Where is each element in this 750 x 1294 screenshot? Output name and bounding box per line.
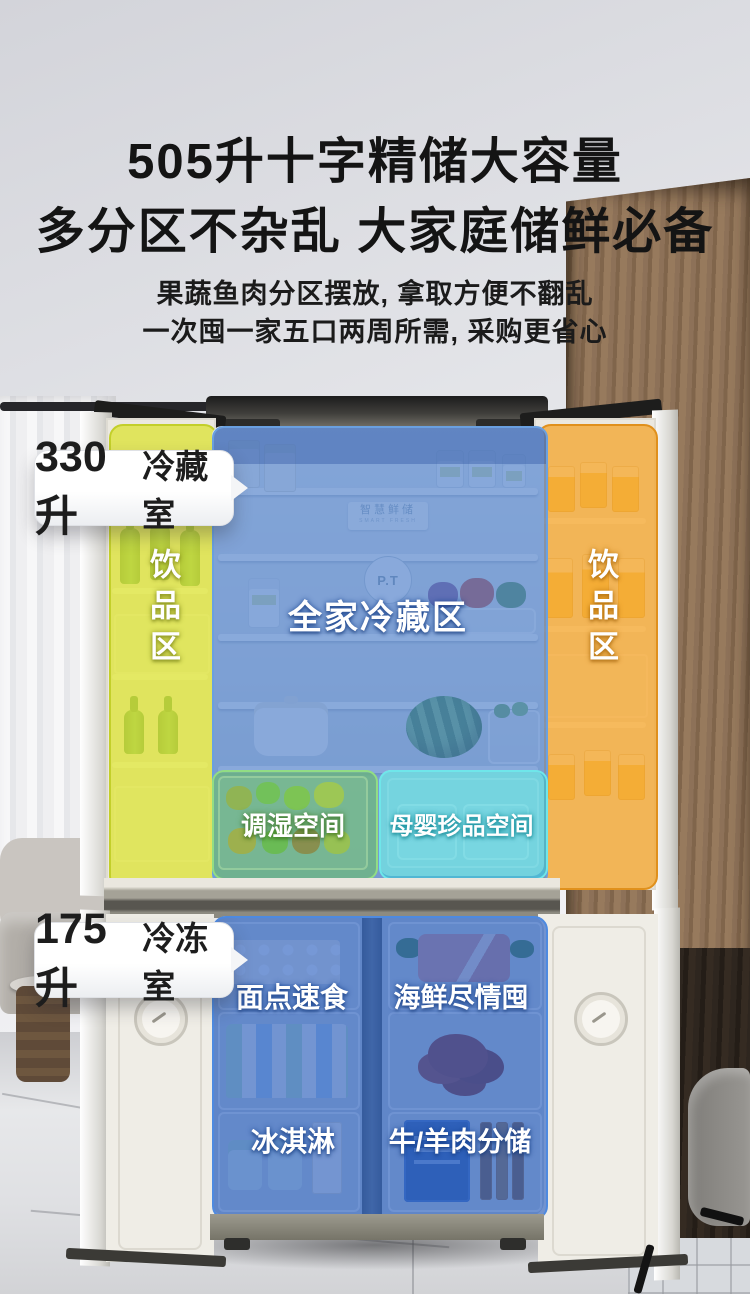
freezer-cell-label-icecream: 冰淇淋 [228, 1120, 358, 1160]
zone-drinks-right-label: 饮品区 [578, 548, 623, 671]
zone-freezer-overlay [212, 916, 548, 1220]
zone-humidity-label: 调湿空间 [212, 806, 374, 843]
page-subtitle-line-2: 一次囤一家五口两周所需, 采购更省心 [0, 310, 750, 349]
freezer-cell-label-pastry: 面点速食 [222, 976, 362, 1016]
door-badge-icon [574, 992, 628, 1046]
freezer-cell-label-seafood: 海鲜尽情囤 [386, 976, 536, 1015]
fridge-capacity-suffix: 冷藏室 [142, 440, 233, 536]
page-title-line-2: 多分区不杂乱 大家庭储鲜必备 [0, 192, 750, 263]
fridge-capacity-value: 330升 [35, 433, 140, 544]
capacity-callout-freezer: 175升冷冻室 [34, 922, 234, 998]
page-title-line-1: 505升十字精储大容量 [0, 122, 750, 193]
right-freezer-door-face [538, 914, 658, 1266]
capacity-callout-fridge: 330升冷藏室 [34, 450, 234, 526]
fridge-wheel [500, 1238, 526, 1250]
fridge-wheel [224, 1238, 250, 1250]
freezer-capacity-suffix: 冷冻室 [142, 912, 233, 1008]
product-promo-page: 505升十字精储大容量 多分区不杂乱 大家庭储鲜必备 果蔬鱼肉分区摆放, 拿取方… [0, 0, 750, 1294]
chair [688, 1068, 750, 1226]
zone-drinks-left-label: 饮品区 [140, 548, 185, 671]
zone-family-cold-label: 全家冷藏区 [212, 590, 544, 639]
freezer-cell-label-beef-lamb: 牛/羊肉分储 [378, 1120, 542, 1159]
fridge-base [210, 1214, 544, 1240]
freezer-capacity-value: 175升 [35, 905, 140, 1016]
zone-mother-baby-label: 母婴珍品空间 [379, 806, 544, 841]
door-panel-line [552, 926, 646, 1256]
page-subtitle-line-1: 果蔬鱼肉分区摆放, 拿取方便不翻乱 [0, 272, 750, 311]
